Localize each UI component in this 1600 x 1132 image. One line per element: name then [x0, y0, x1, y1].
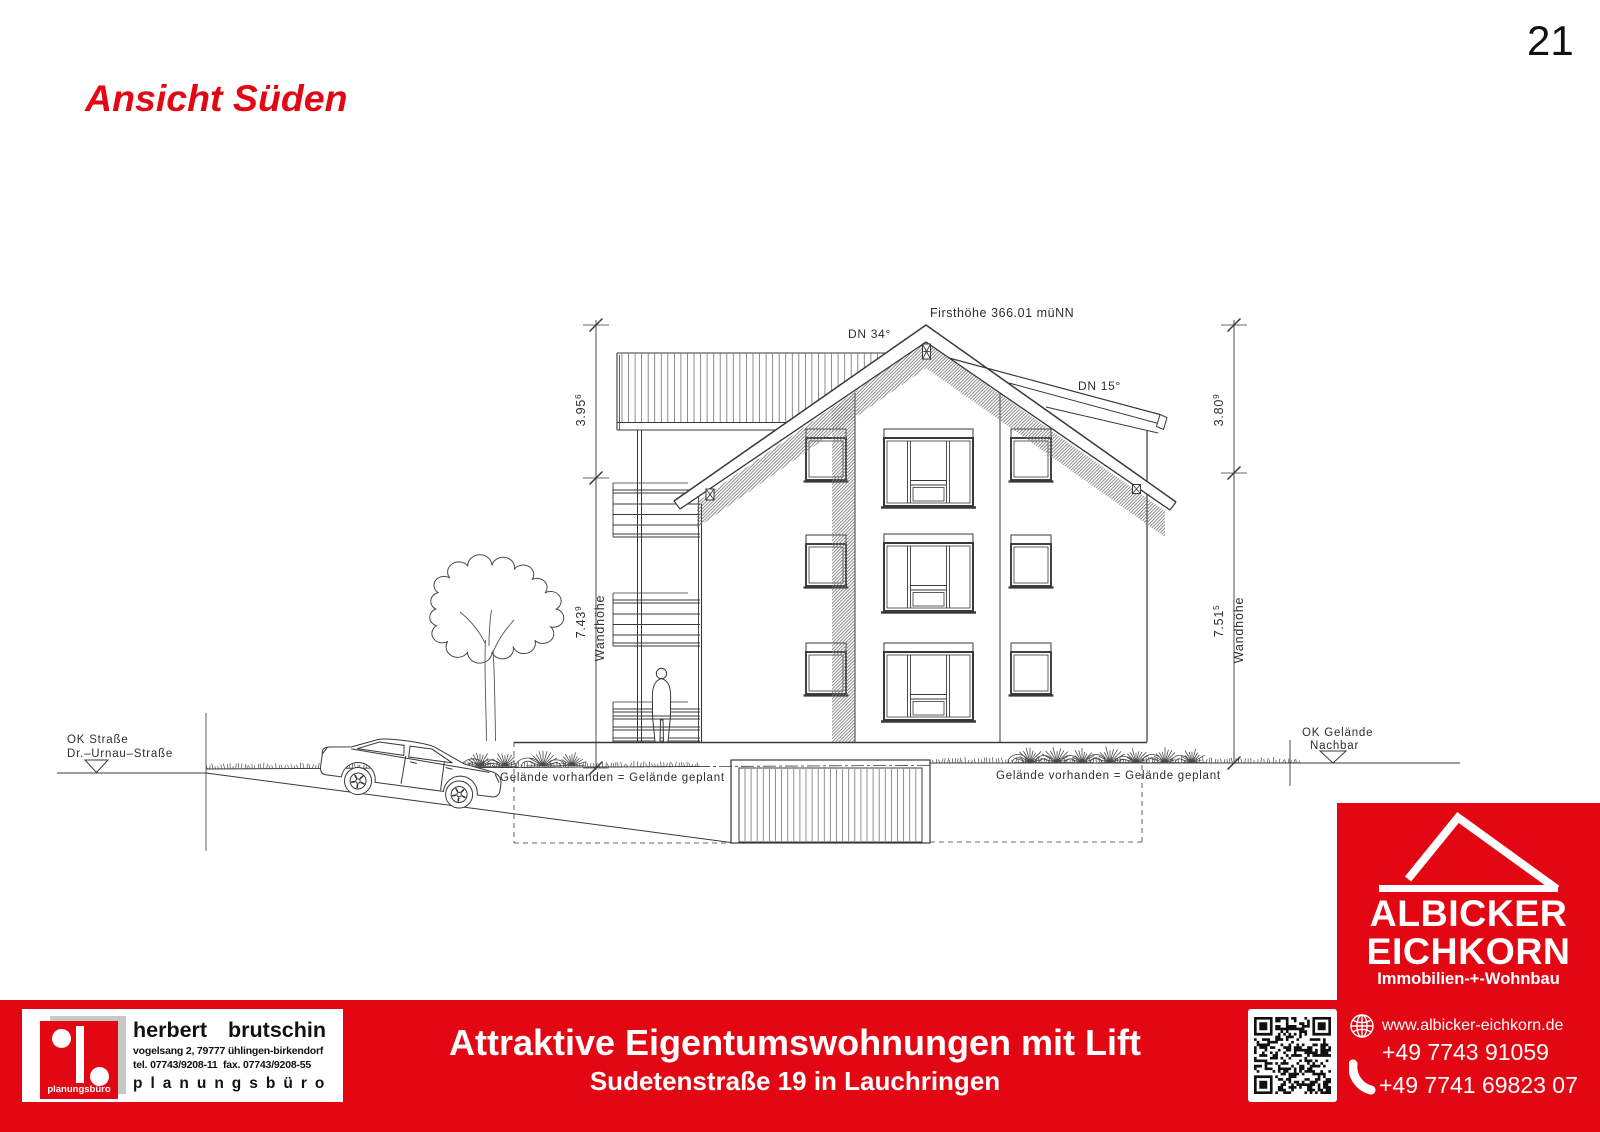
svg-text:Wandhöhe: Wandhöhe — [593, 595, 607, 661]
svg-text:Nachbar: Nachbar — [1310, 740, 1359, 752]
svg-text:7.515: 7.515 — [1212, 605, 1226, 638]
svg-text:OK Straße: OK Straße — [67, 734, 129, 746]
svg-text:3.956: 3.956 — [574, 394, 588, 427]
svg-text:DN 15°: DN 15° — [1078, 379, 1121, 393]
svg-text:DN 34°: DN 34° — [848, 327, 891, 341]
svg-text:Wandhöhe: Wandhöhe — [1232, 597, 1246, 663]
svg-text:Gelände vorhanden = Gelände ge: Gelände vorhanden = Gelände geplant — [500, 772, 725, 784]
svg-text:Dr.–Urnau–Straße: Dr.–Urnau–Straße — [67, 748, 173, 760]
svg-text:3.809: 3.809 — [1212, 394, 1226, 427]
svg-text:Gelände vorhanden = Gelände ge: Gelände vorhanden = Gelände geplant — [996, 770, 1221, 782]
svg-text:OK Gelände: OK Gelände — [1302, 727, 1373, 739]
svg-text:7.439: 7.439 — [574, 606, 588, 639]
svg-text:Firsthöhe 366.01 müNN: Firsthöhe 366.01 müNN — [930, 306, 1074, 320]
